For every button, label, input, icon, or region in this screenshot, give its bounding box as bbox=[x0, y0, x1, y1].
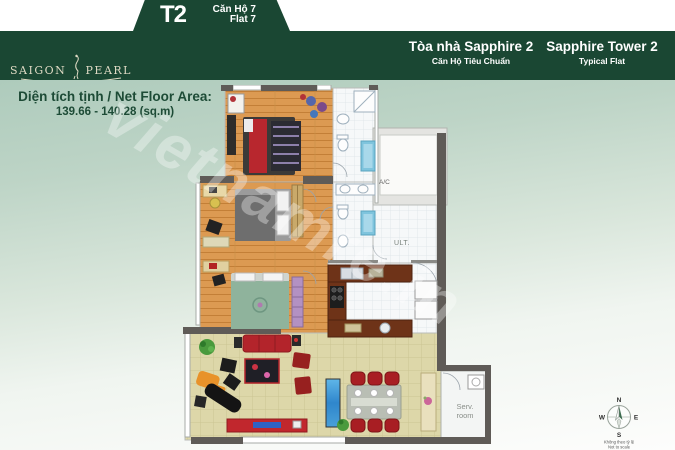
serv-room-label-line2: room bbox=[456, 411, 473, 420]
building-title-en-main: Sapphire Tower 2 bbox=[541, 39, 663, 54]
unit-tab: T2 Căn Hộ 7 Flat 7 bbox=[133, 0, 290, 31]
compass-e: E bbox=[634, 415, 639, 422]
top-strip bbox=[0, 0, 675, 31]
building-title-vi-main: Tòa nhà Sapphire 2 bbox=[398, 39, 544, 54]
unit-label-en: Flat 7 bbox=[213, 15, 256, 25]
ac-label: A/C bbox=[379, 179, 390, 186]
crane-icon bbox=[70, 54, 82, 80]
service-room-furniture bbox=[468, 375, 484, 389]
header-band: SAIGON PEARL Tòa nhà Sapphire 2 Căn Hộ T… bbox=[0, 31, 675, 80]
ult-label: ULT. bbox=[394, 240, 410, 247]
logo-word-saigon: SAIGON bbox=[10, 64, 66, 77]
apartment-floorplan: A/C ULT. Serv. room bbox=[175, 85, 495, 447]
building-title-vi-sub: Căn Hộ Tiêu Chuẩn bbox=[398, 56, 544, 66]
logo-word-pearl: PEARL bbox=[86, 64, 132, 77]
serv-room-label-line1: Serv. bbox=[457, 402, 474, 411]
compass: N E S W Không theo tỷ lệ Not to scale bbox=[592, 392, 648, 450]
building-title-en-sub: Typical Flat bbox=[541, 56, 663, 66]
plan-background: Diện tích tịnh / Net Floor Area: 139.66 … bbox=[0, 80, 675, 450]
compass-n: N bbox=[617, 397, 622, 404]
saigon-pearl-logo: SAIGON PEARL bbox=[10, 39, 132, 77]
compass-note-en: Not to scale bbox=[608, 445, 631, 450]
building-title-en: Sapphire Tower 2 Typical Flat bbox=[541, 39, 663, 66]
floorplan-sheet: T2 Căn Hộ 7 Flat 7 SAIGON PEARL Tòa nhà … bbox=[0, 0, 675, 450]
compass-w: W bbox=[599, 415, 606, 422]
unit-label: Căn Hộ 7 Flat 7 bbox=[213, 5, 256, 25]
compass-s: S bbox=[617, 432, 622, 439]
tower-code: T2 bbox=[160, 1, 186, 29]
building-title-vi: Tòa nhà Sapphire 2 Căn Hộ Tiêu Chuẩn bbox=[398, 39, 544, 66]
